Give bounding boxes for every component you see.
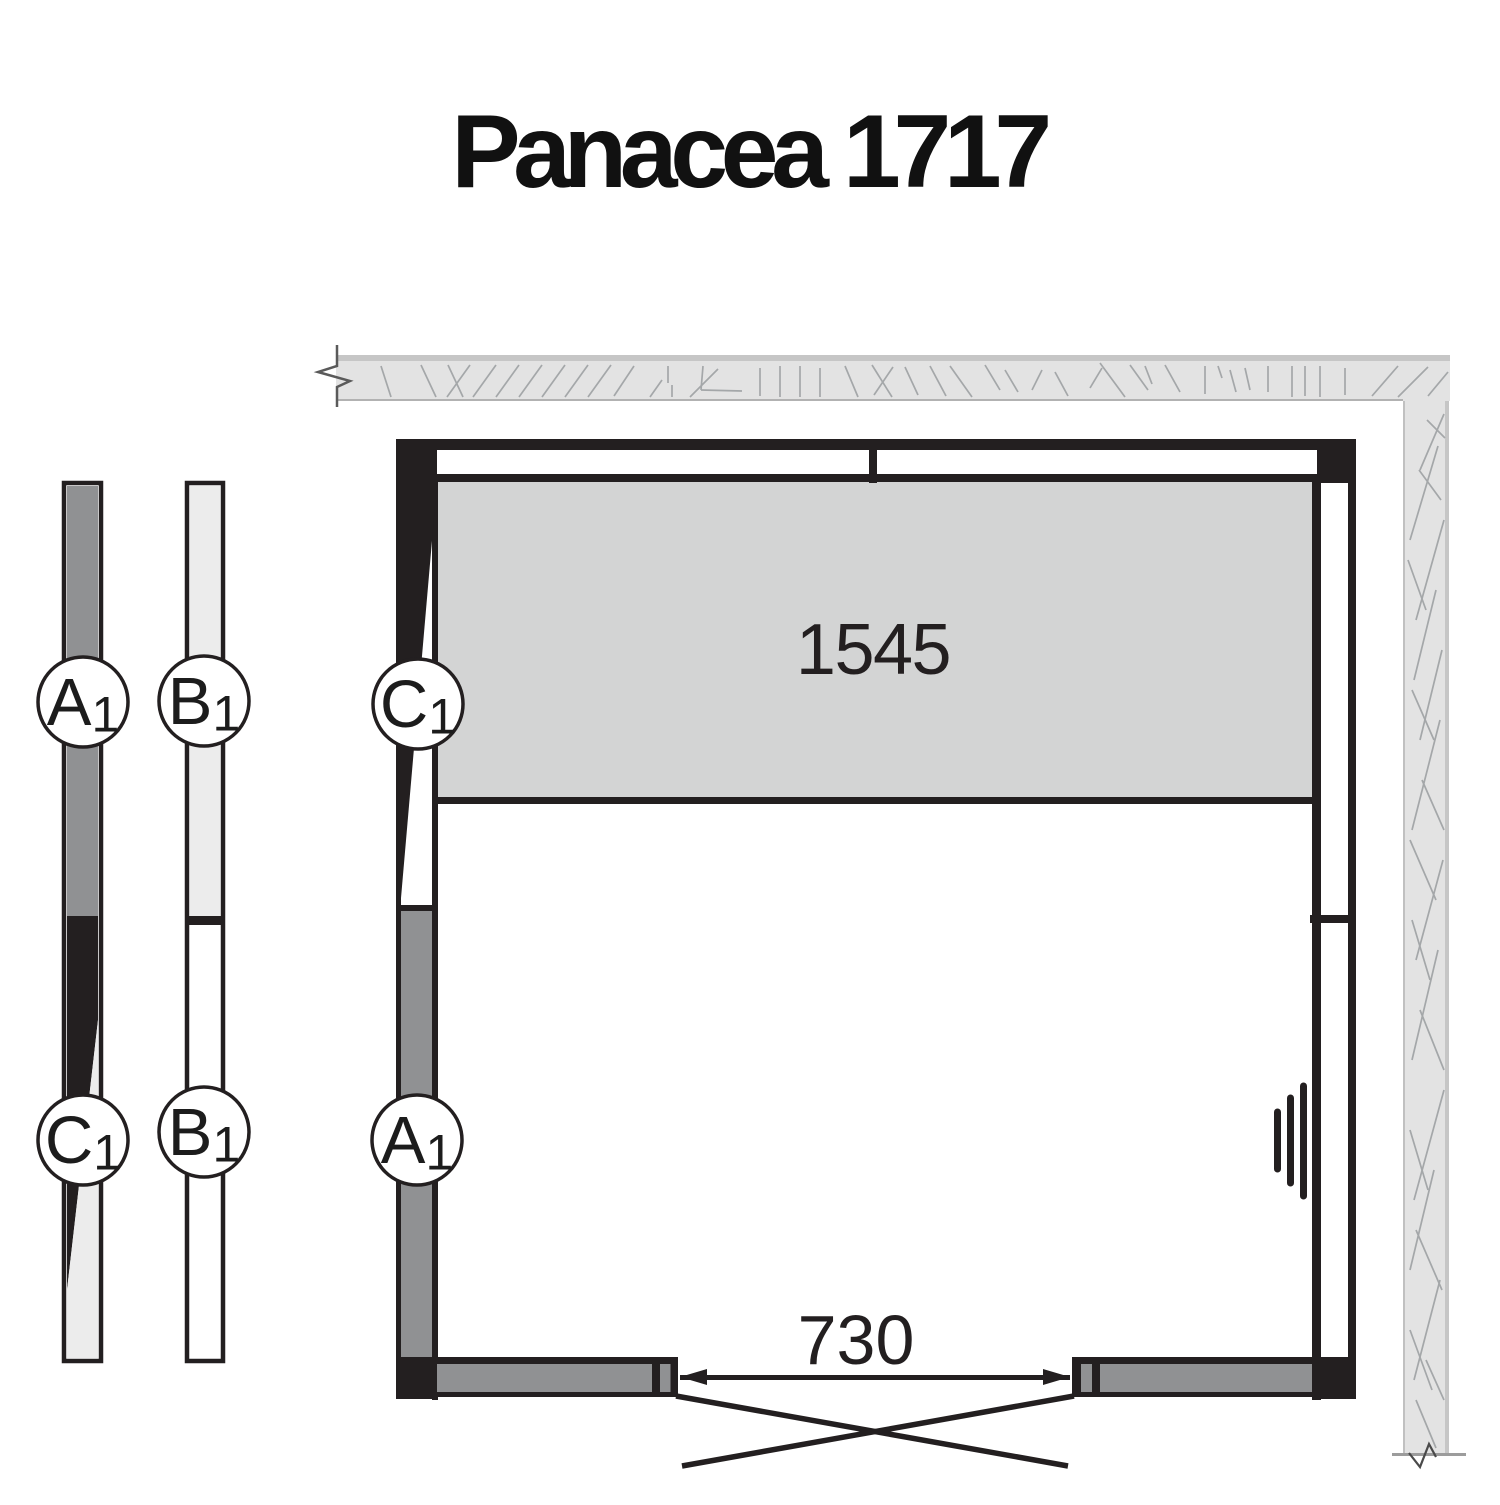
svg-text:Panacea 1717: Panacea 1717	[451, 94, 1048, 210]
svg-text:730: 730	[798, 1301, 915, 1379]
svg-text:1545: 1545	[796, 610, 950, 690]
